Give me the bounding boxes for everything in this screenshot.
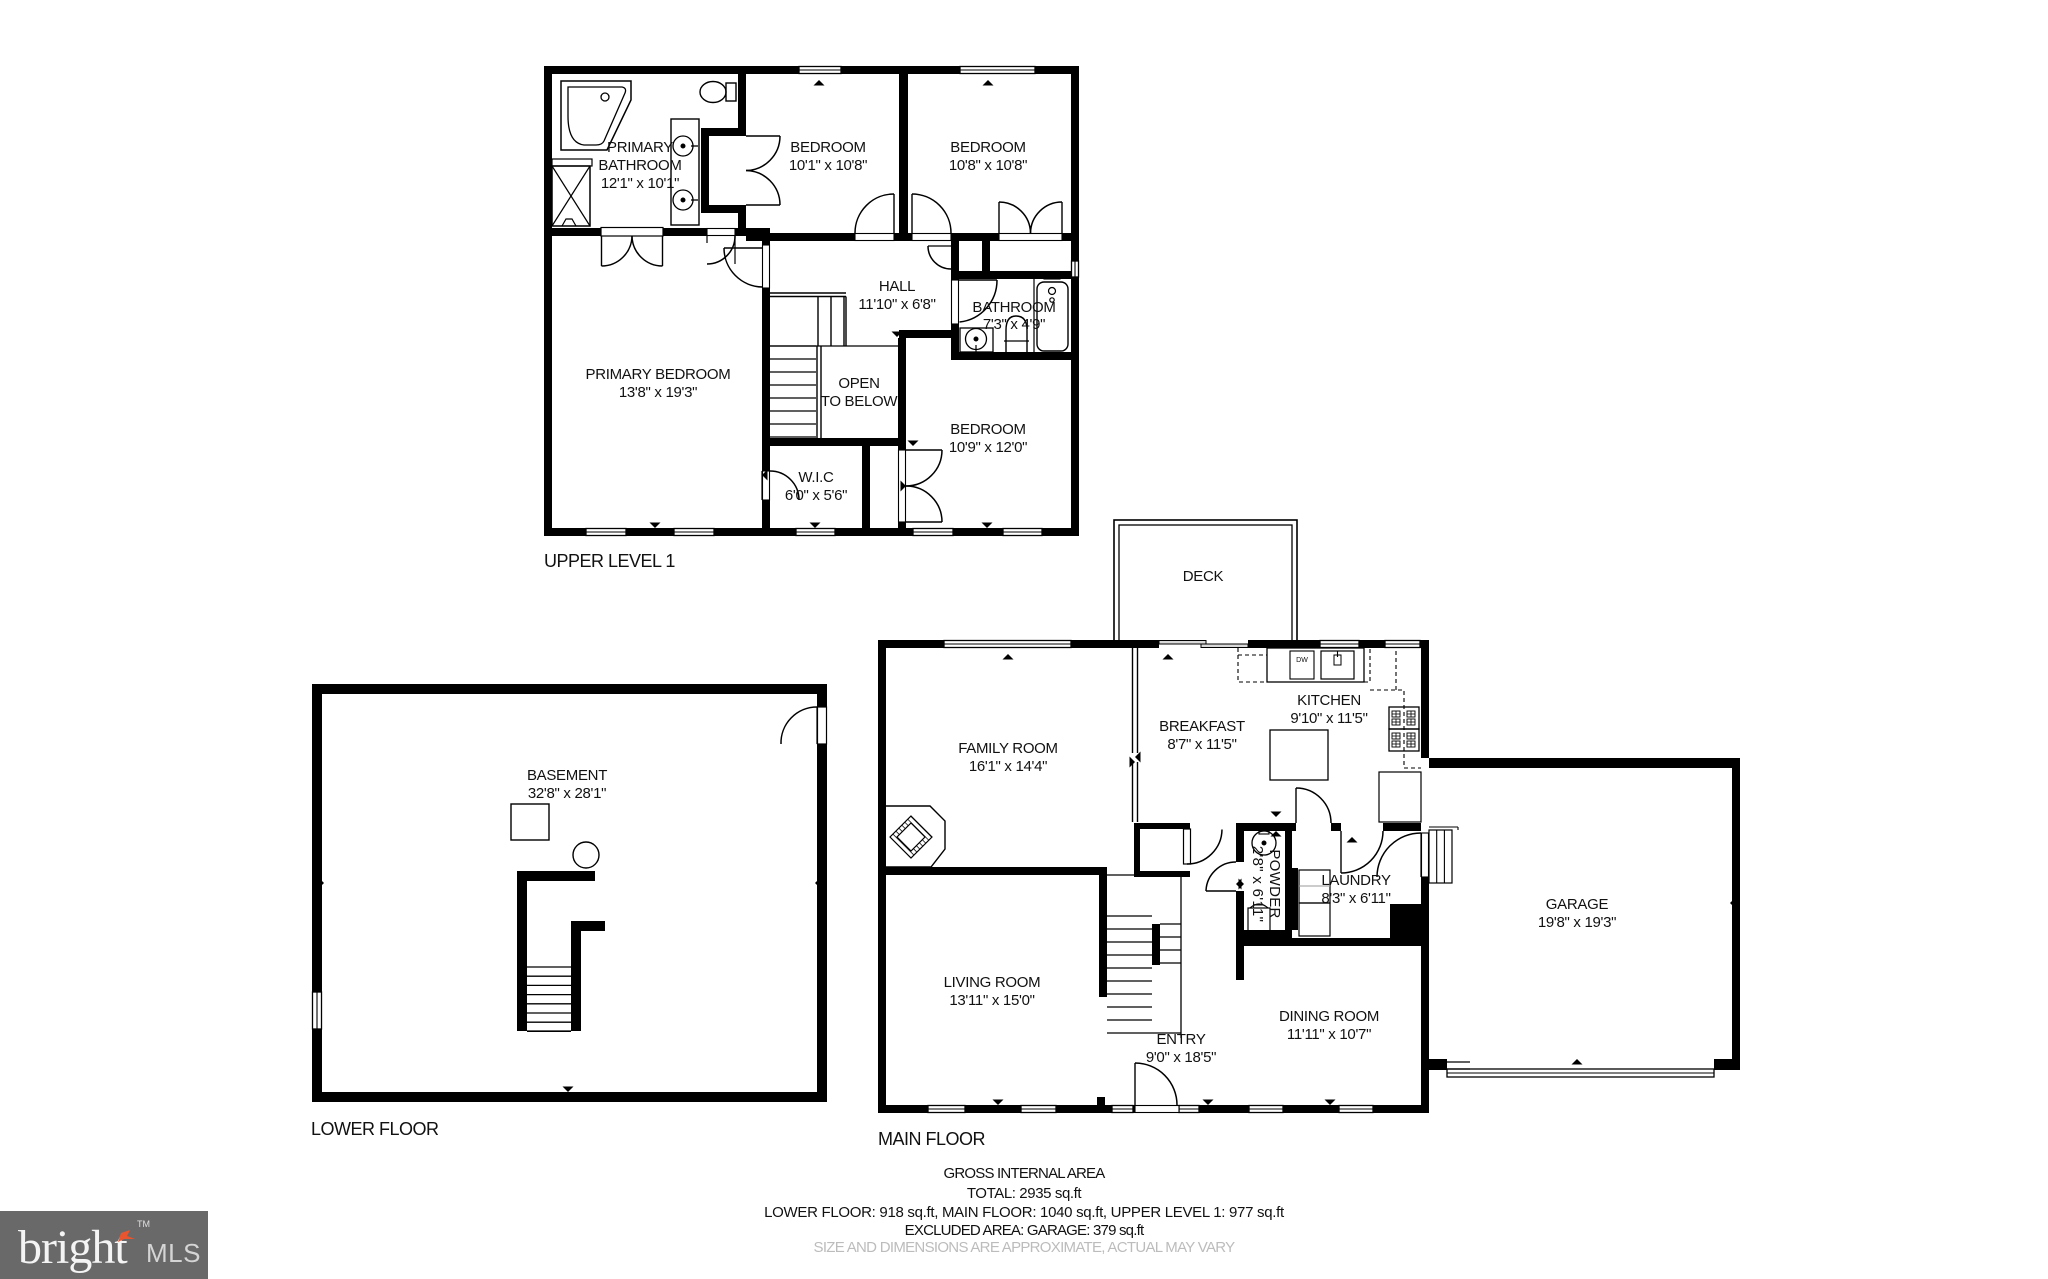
- svg-text:13'8" x 19'3": 13'8" x 19'3": [619, 384, 697, 401]
- svg-text:DW: DW: [1296, 657, 1308, 664]
- svg-text:BATHROOM: BATHROOM: [598, 157, 681, 174]
- svg-text:BATHROOM: BATHROOM: [972, 299, 1055, 316]
- svg-text:9'10" x 11'5": 9'10" x 11'5": [1290, 710, 1367, 727]
- svg-text:EXCLUDED AREA: GARAGE: 379 sq.: EXCLUDED AREA: GARAGE: 379 sq.ft: [905, 1222, 1145, 1239]
- svg-text:MAIN FLOOR: MAIN FLOOR: [878, 1129, 986, 1149]
- svg-text:11'11" x 10'7": 11'11" x 10'7": [1287, 1026, 1371, 1043]
- svg-text:6'0" x 5'6": 6'0" x 5'6": [785, 487, 847, 504]
- svg-text:10'8" x 10'8": 10'8" x 10'8": [949, 157, 1027, 174]
- svg-text:LAUNDRY: LAUNDRY: [1321, 872, 1391, 889]
- svg-text:LOWER FLOOR: 918 sq.ft, MAIN F: LOWER FLOOR: 918 sq.ft, MAIN FLOOR: 1040…: [764, 1204, 1285, 1221]
- svg-text:W.I.C: W.I.C: [798, 469, 834, 486]
- svg-text:PRIMARY: PRIMARY: [607, 139, 673, 156]
- svg-text:ENTRY: ENTRY: [1156, 1031, 1205, 1048]
- svg-text:LOWER FLOOR: LOWER FLOOR: [311, 1119, 439, 1139]
- svg-text:10'1" x 10'8": 10'1" x 10'8": [789, 157, 867, 174]
- svg-text:TOTAL: 2935 sq.ft: TOTAL: 2935 sq.ft: [967, 1185, 1083, 1202]
- svg-text:OPEN: OPEN: [838, 375, 879, 392]
- svg-text:SIZE AND DIMENSIONS ARE APPROX: SIZE AND DIMENSIONS ARE APPROXIMATE, ACT…: [814, 1239, 1236, 1256]
- svg-text:12'1" x 10'1": 12'1" x 10'1": [601, 175, 679, 192]
- svg-text:DECK: DECK: [1183, 568, 1224, 585]
- svg-text:BREAKFAST: BREAKFAST: [1159, 718, 1245, 735]
- svg-text:8'7" x 11'5": 8'7" x 11'5": [1167, 736, 1236, 753]
- svg-text:11'10" x 6'8": 11'10" x 6'8": [858, 296, 935, 313]
- svg-text:2'8" x 6'11": 2'8" x 6'11": [1249, 846, 1266, 922]
- svg-text:GROSS INTERNAL AREA: GROSS INTERNAL AREA: [944, 1165, 1106, 1182]
- svg-text:FAMILY ROOM: FAMILY ROOM: [958, 740, 1058, 757]
- svg-text:13'11" x 15'0": 13'11" x 15'0": [949, 992, 1034, 1009]
- svg-text:GARAGE: GARAGE: [1546, 896, 1609, 913]
- svg-text:MLS: MLS: [146, 1238, 201, 1268]
- svg-text:7'3" x 4'9": 7'3" x 4'9": [983, 316, 1045, 333]
- svg-text:BEDROOM: BEDROOM: [950, 421, 1025, 438]
- svg-text:UPPER LEVEL 1: UPPER LEVEL 1: [544, 551, 675, 571]
- svg-text:9'0" x 18'5": 9'0" x 18'5": [1146, 1049, 1216, 1066]
- svg-text:TM: TM: [137, 1219, 150, 1229]
- svg-text:bright: bright: [18, 1221, 128, 1274]
- svg-text:BASEMENT: BASEMENT: [527, 767, 607, 784]
- svg-text:16'1" x 14'4": 16'1" x 14'4": [969, 758, 1047, 775]
- svg-text:BEDROOM: BEDROOM: [790, 139, 865, 156]
- svg-text:32'8" x 28'1": 32'8" x 28'1": [528, 785, 606, 802]
- svg-text:HALL: HALL: [879, 278, 915, 295]
- svg-text:10'9" x 12'0": 10'9" x 12'0": [949, 439, 1027, 456]
- svg-text:BEDROOM: BEDROOM: [950, 139, 1025, 156]
- svg-text:8'3" x 6'11": 8'3" x 6'11": [1321, 890, 1390, 907]
- svg-text:PRIMARY BEDROOM: PRIMARY BEDROOM: [586, 366, 731, 383]
- svg-text:TO BELOW: TO BELOW: [821, 393, 899, 410]
- svg-text:19'8" x 19'3": 19'8" x 19'3": [1538, 914, 1616, 931]
- svg-text:LIVING ROOM: LIVING ROOM: [944, 974, 1041, 991]
- svg-text:DINING ROOM: DINING ROOM: [1279, 1008, 1379, 1025]
- svg-text:POWDER: POWDER: [1266, 849, 1283, 918]
- svg-text:KITCHEN: KITCHEN: [1297, 692, 1361, 709]
